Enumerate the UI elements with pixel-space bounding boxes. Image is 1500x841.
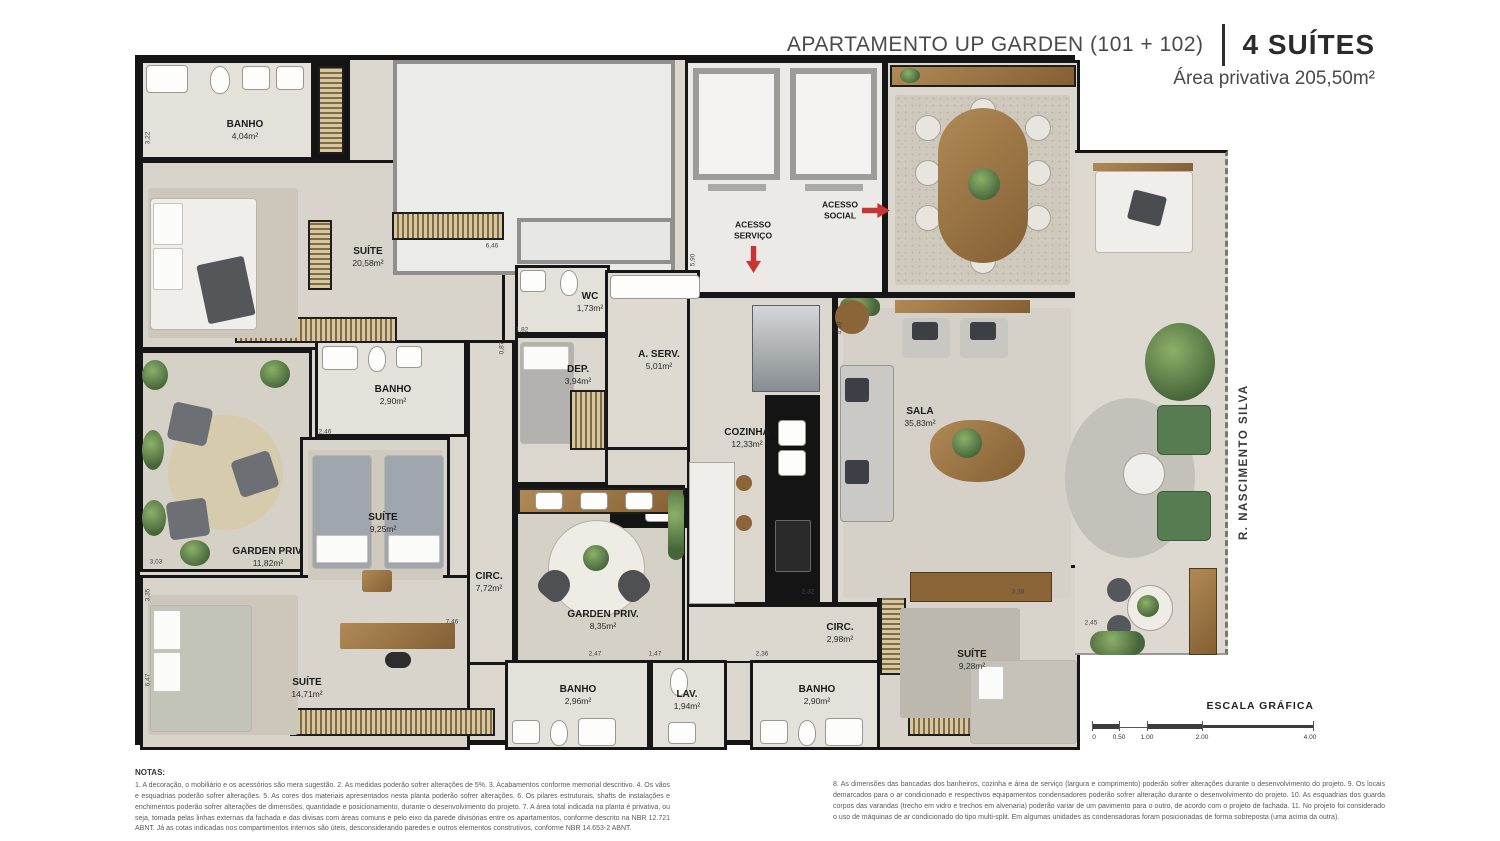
dimension: 2,36 <box>756 651 769 658</box>
dimension: 1,47 <box>649 651 662 658</box>
label-suite-4: SUÍTE9,28m² <box>957 649 986 671</box>
pillow <box>153 652 181 692</box>
sink <box>242 66 270 90</box>
label-circ-1: CIRC.7,72m² <box>475 571 502 593</box>
toilet <box>368 346 386 372</box>
graphic-scale: ESCALA GRÁFICA 0 0.50 1.00 2.00 4.00 <box>1092 700 1314 746</box>
scale-label: 0 <box>1092 734 1096 741</box>
stool <box>736 475 752 491</box>
dimension: 3,38 <box>1012 589 1025 596</box>
dimension: 0,87 <box>499 342 506 355</box>
access-social-label: ACESSO SOCIAL <box>822 199 858 220</box>
header-divider <box>1222 24 1225 66</box>
notes-text-8-11: 8. As dimensões das bancadas dos banheir… <box>833 780 1385 823</box>
sink <box>512 720 540 744</box>
plant <box>668 490 684 560</box>
label-sala: SALA35,83m² <box>904 406 935 428</box>
scale-label: 4.00 <box>1304 734 1317 741</box>
toilet <box>560 270 578 296</box>
label-banho-2: BANHO2,90m² <box>375 384 412 406</box>
outdoor-cabinet <box>1189 568 1217 655</box>
dimension: 5,90 <box>690 254 697 267</box>
elevator-door <box>805 184 863 191</box>
shower <box>146 65 188 93</box>
wardrobe <box>290 708 495 736</box>
floorplan: ACESSO SERVIÇO ACESSO SOCIAL <box>135 55 1075 745</box>
pillow <box>153 610 181 650</box>
label-garden-priv-1: GARDEN PRIV.11,82m² <box>232 546 303 568</box>
label-banho-3: BANHO2,96m² <box>560 684 597 706</box>
dimension: 4,40 <box>837 322 844 335</box>
pillow <box>153 248 183 290</box>
common-area-annex <box>517 218 674 264</box>
planter-box <box>625 492 653 510</box>
notes-left-column: NOTAS: 1. A decoração, o mobiliário e os… <box>135 768 670 835</box>
page-title: APARTAMENTO UP GARDEN (101 + 102) <box>787 33 1204 57</box>
dining-chair <box>1025 160 1051 186</box>
dimension: 2,45 <box>1085 620 1098 627</box>
scale-label: 0.50 <box>1113 734 1126 741</box>
armchair <box>166 401 213 446</box>
scale-tick <box>1202 721 1203 731</box>
shower <box>578 718 616 746</box>
plant <box>952 428 982 458</box>
dimension: 2,47 <box>589 651 602 658</box>
console-table <box>895 300 1030 313</box>
dining-chair <box>1025 205 1051 231</box>
shelf <box>570 390 606 450</box>
planter-box <box>535 492 563 510</box>
plant <box>1090 631 1145 655</box>
planter-box <box>580 492 608 510</box>
plant <box>1137 595 1159 617</box>
palm-plant <box>1145 323 1215 401</box>
green-armchair <box>1157 405 1211 455</box>
label-lav: LAV.1,94m² <box>674 689 700 711</box>
cushion <box>845 460 869 484</box>
room-varanda: 2,45 <box>1075 150 1228 655</box>
plant <box>968 168 1000 200</box>
sink <box>396 346 422 368</box>
stool <box>736 515 752 531</box>
scale-title: ESCALA GRÁFICA <box>1206 700 1314 712</box>
floorplan-page: APARTAMENTO UP GARDEN (101 + 102) 4 SUÍT… <box>0 0 1500 841</box>
dimension: 3,35 <box>145 589 152 602</box>
label-a-serv: A. SERV.5,01m² <box>638 349 680 371</box>
kitchen-island <box>689 462 735 604</box>
dining-chair <box>915 115 941 141</box>
sink <box>276 66 304 90</box>
label-dep: DEP.3,94m² <box>565 364 591 386</box>
plant <box>142 500 166 536</box>
label-suite-1: SUÍTE20,58m² <box>352 246 383 268</box>
scale-label: 2.00 <box>1196 734 1209 741</box>
scale-label: 1.00 <box>1141 734 1154 741</box>
street-name: R. NASCIMENTO SILVA <box>1238 330 1250 540</box>
plant <box>900 68 920 83</box>
toilet <box>210 66 230 94</box>
wardrobe <box>318 66 344 154</box>
round-table <box>1123 453 1165 495</box>
sink <box>520 270 546 292</box>
desk-chair <box>385 652 411 668</box>
dimension: 6,46 <box>486 243 499 250</box>
dimension: 3,22 <box>145 132 152 145</box>
dimension: 3,03 <box>150 559 163 566</box>
shower <box>322 346 358 370</box>
sink <box>760 720 788 744</box>
room-circ-1 <box>467 340 515 665</box>
desk <box>340 623 455 649</box>
pillow <box>388 535 440 563</box>
label-suite-2: SUÍTE9,25m² <box>368 512 397 534</box>
elevator-shaft <box>790 68 877 180</box>
sink <box>668 722 696 744</box>
nightstand <box>362 570 392 592</box>
plant <box>142 360 168 390</box>
scale-tick <box>1092 721 1093 731</box>
label-cozinha: COZINHA12,33m² <box>724 427 770 449</box>
cooktop <box>775 520 811 572</box>
kitchen-sink <box>778 450 806 476</box>
dimension: 7,46 <box>446 619 459 626</box>
plant <box>142 430 164 470</box>
scale-segment <box>1092 724 1119 729</box>
scale-segment <box>1202 725 1314 728</box>
cushion <box>845 378 869 402</box>
toilet <box>798 720 816 746</box>
kitchen-sink <box>778 420 806 446</box>
armchair <box>166 497 211 540</box>
dimension: 2,32 <box>802 589 815 596</box>
pillow <box>523 346 569 370</box>
notes-heading: NOTAS: <box>135 768 670 777</box>
scale-segment <box>1147 724 1202 729</box>
label-suite-3: SUÍTE14,71m² <box>291 677 322 699</box>
label-circ-2: CIRC.2,98m² <box>826 622 853 644</box>
label-banho-4: BANHO2,90m² <box>799 684 836 706</box>
scale-tick <box>1313 721 1314 731</box>
elevator-shaft <box>693 68 780 180</box>
green-armchair <box>1157 491 1211 541</box>
headboard <box>1093 163 1193 171</box>
fridge-oven-tower <box>752 305 820 392</box>
elevator-door <box>708 184 766 191</box>
laundry-counter <box>610 275 700 299</box>
label-banho-1: BANHO4,04m² <box>227 119 264 141</box>
notes-right-column: 8. As dimensões das bancadas dos banheir… <box>833 780 1385 823</box>
pillow <box>978 666 1004 700</box>
wardrobe <box>392 212 504 240</box>
access-servico-label: ACESSO SERVIÇO <box>734 219 772 240</box>
dresser <box>308 220 332 290</box>
label-garden-priv-2: GARDEN PRIV.8,35m² <box>567 609 638 631</box>
dining-chair <box>1025 115 1051 141</box>
scale-tick <box>1147 721 1148 731</box>
scale-tick <box>1119 721 1120 731</box>
dimension: 2,46 <box>319 429 332 436</box>
notes-text-1-7: 1. A decoração, o mobiliário e os acessó… <box>135 781 670 835</box>
toilet <box>550 720 568 746</box>
pillow <box>316 535 368 563</box>
cushion <box>912 322 938 340</box>
label-wc: WC1,73m² <box>577 291 603 313</box>
private-area-label: Área privativa 205,50m² <box>1173 68 1375 90</box>
dimension: 6,47 <box>145 674 152 687</box>
desk-unit <box>910 572 1052 602</box>
cushion <box>970 322 996 340</box>
plant <box>260 360 290 388</box>
chair <box>1107 578 1131 602</box>
shower <box>825 718 863 746</box>
plant <box>180 540 210 566</box>
plant <box>583 545 609 571</box>
suites-count: 4 SUÍTES <box>1243 29 1375 61</box>
pillow <box>153 203 183 245</box>
dimension: 1,82 <box>516 327 529 334</box>
